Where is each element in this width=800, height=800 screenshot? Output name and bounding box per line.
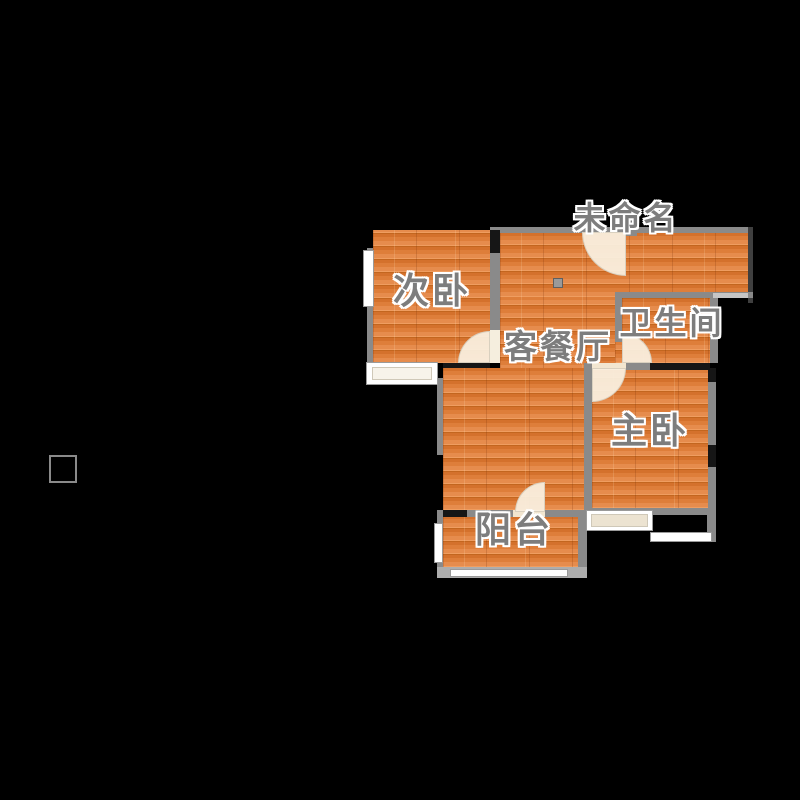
- floor-bathroom-door-gap: [615, 342, 622, 363]
- wall-master-right-black-mid: [708, 445, 716, 467]
- window-outer-rail-horizontal: [650, 532, 712, 542]
- floor-plan-canvas: 未命名 次卧 卫生间 客餐厅 主卧 阳台: [0, 0, 800, 800]
- floor-living-dining-lower[interactable]: [443, 368, 584, 510]
- wall-second-bedroom-right-black: [490, 230, 500, 253]
- wall-living-top-black: [443, 363, 490, 368]
- window-second-bedroom-left: [363, 250, 374, 307]
- wall-master-right: [708, 368, 716, 512]
- label-bathroom: 卫生间: [619, 298, 724, 344]
- window-master-bottom-inner: [591, 514, 648, 527]
- label-balcony: 阳台: [475, 501, 553, 553]
- window-balcony-left: [434, 523, 443, 563]
- label-living-dining: 客餐厅: [504, 320, 612, 368]
- label-second-bedroom: 次卧: [393, 262, 471, 314]
- column-marker: [553, 278, 563, 288]
- label-unnamed-room: 未命名: [573, 193, 678, 239]
- door-gap-second-bedroom: [490, 330, 500, 363]
- wall-master-left: [584, 363, 592, 515]
- window-second-bedroom-bottom-inner: [372, 367, 432, 380]
- label-master-bedroom: 主卧: [611, 402, 689, 454]
- window-balcony-bottom: [450, 569, 568, 577]
- wall-bathroom-bottom-black: [650, 363, 710, 370]
- wall-master-right-black-top: [708, 368, 716, 382]
- wall-living-left: [437, 378, 443, 455]
- legend-square[interactable]: [49, 455, 77, 483]
